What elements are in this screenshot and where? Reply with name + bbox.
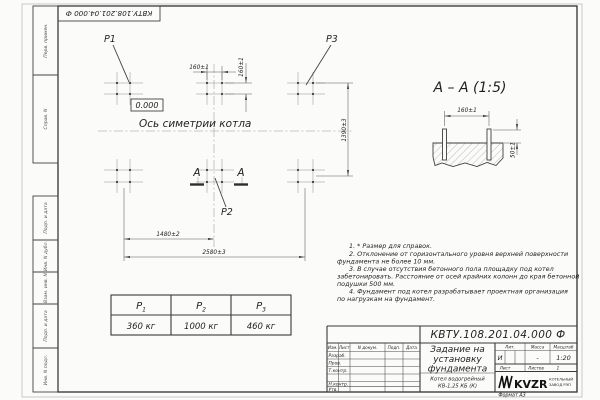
load-table-header: P3 — [256, 301, 266, 314]
dim-plan-half: 1480±2 — [124, 188, 214, 261]
margin-label-podp-data-1: Подп. и дата — [43, 202, 49, 233]
brand-sub2: ЗАВОД РЭП — [549, 383, 571, 387]
load-table-header: P1 — [136, 301, 146, 314]
mass-value: - — [536, 354, 539, 362]
margin-label-vzam-inv: Взам. инв. N — [43, 273, 49, 303]
margin-label-podp-data-2: Подп. и дата — [43, 310, 49, 341]
doc-title-line1: Задание на — [430, 345, 485, 355]
margin-label-inv-dubl: Инв. N дубл. — [43, 241, 49, 271]
anchor-bolt-right — [487, 129, 491, 160]
col-podp: Подп. — [388, 345, 401, 350]
svg-text:2580±3: 2580±3 — [202, 250, 226, 256]
dim-section-pitch: 160±1 — [445, 108, 490, 126]
dim-plan-height: 1390±3 — [316, 83, 353, 176]
row-prov: Пров. — [329, 361, 342, 367]
col-izm: Изм. — [328, 345, 338, 350]
svg-text:1480±2: 1480±2 — [156, 232, 180, 238]
plan-label-p2: P2 — [221, 207, 233, 218]
margin-label-sprav-n: Справ. N — [43, 108, 49, 130]
dim-pitch-y: 160±1 — [225, 57, 252, 112]
svg-text:160±1: 160±1 — [189, 65, 209, 71]
title-block: КВТУ.108.201.04.000 Ф Изм. Лист N докум.… — [327, 326, 577, 393]
note-line: по нагрузкам на фундамент. — [337, 295, 435, 303]
doc-title-line2: установку — [432, 355, 482, 365]
svg-text:А: А — [192, 167, 200, 179]
drawing-sheet: Перв. примен. Справ. N Подп. и дата Инв.… — [0, 0, 600, 400]
load-table-value: 1000 кг — [184, 322, 218, 332]
row-utv: Утв. — [329, 387, 338, 393]
margin-label-perv-primen: Перв. примен. — [43, 23, 49, 58]
dim-plan-total: 2580±3 — [124, 188, 305, 261]
brand-sub1: КОТЕЛЬНЫЙ — [549, 377, 573, 382]
svg-text:50±1: 50±1 — [511, 142, 517, 158]
format-note: Формат А3 — [498, 393, 525, 399]
notes-block: 1. * Размер для справок. 2. Отклонение о… — [337, 242, 579, 303]
load-table: P1 P2 P3 360 кг 1000 кг 460 кг — [111, 295, 291, 335]
listov-value: 1 — [557, 366, 560, 372]
row-nkontr: Н.контр. — [329, 382, 349, 388]
load-table-header: P2 — [196, 301, 206, 314]
col-list: Лист — [338, 345, 350, 350]
symmetry-axis-label: Ось симетрии котла — [139, 118, 251, 130]
titleblock-doc-number: КВТУ.108.201.04.000 Ф — [430, 329, 565, 341]
brand-name: KVZR — [514, 378, 548, 391]
margin-label-inv-podl: Инв. N подл. — [43, 355, 49, 385]
anchor-bolt-dots — [116, 82, 314, 183]
plan-label-p1: P1 — [104, 34, 116, 45]
plan-label-p3: P3 — [326, 34, 338, 45]
load-table-value: 360 кг — [127, 322, 156, 332]
doc-title-line3: фундамента — [428, 365, 488, 375]
top-doc-number: КВТУ.108.201.04.000 Ф — [66, 9, 153, 18]
section-view: А – А (1:5) 160±1 50±1 — [433, 80, 521, 167]
list-label: Лист — [499, 366, 511, 371]
svg-text:160±1: 160±1 — [457, 108, 477, 114]
level-mark: 0.000 — [136, 101, 159, 110]
anchor-bolt-left — [443, 129, 447, 160]
lit-label: Лит. — [504, 345, 515, 350]
svg-text:160±1: 160±1 — [239, 57, 245, 77]
kvzr-logo-icon — [499, 376, 512, 388]
col-ndoc: N докум. — [358, 345, 377, 350]
foundation-plan: P1 P3 P2 0.000 Ось симетрии котла 160±1 … — [98, 34, 353, 261]
product-line2: КВ-1,25 КБ (К) — [438, 384, 477, 390]
bolt-cluster-axes — [104, 72, 325, 193]
section-title: А – А (1:5) — [433, 80, 507, 96]
drawing-canvas: Перв. примен. Справ. N Подп. и дата Инв.… — [0, 0, 600, 400]
load-table-value: 460 кг — [247, 322, 276, 332]
svg-text:А: А — [236, 167, 244, 179]
dim-pitch-x: 160±1 — [189, 65, 236, 80]
svg-text:1390±3: 1390±3 — [342, 118, 348, 142]
note-line: 1. * Размер для справок. — [349, 242, 432, 250]
row-razrab: Разраб. — [329, 353, 346, 359]
top-doc-number-box: КВТУ.108.201.04.000 Ф — [58, 6, 160, 21]
margin-stamp-column: Перв. примен. Справ. N Подп. и дата Инв.… — [33, 6, 58, 392]
row-tkontr: Т.контр. — [329, 368, 348, 374]
lit-value: И — [498, 354, 503, 362]
product-line1: Котел водогрейный — [430, 377, 485, 383]
mass-label: Масса — [531, 345, 545, 350]
scale-label: Масштаб — [554, 345, 574, 350]
col-data: Дата — [405, 345, 417, 350]
listov-label: Листов — [527, 366, 544, 371]
scale-value: 1:20 — [556, 354, 571, 362]
